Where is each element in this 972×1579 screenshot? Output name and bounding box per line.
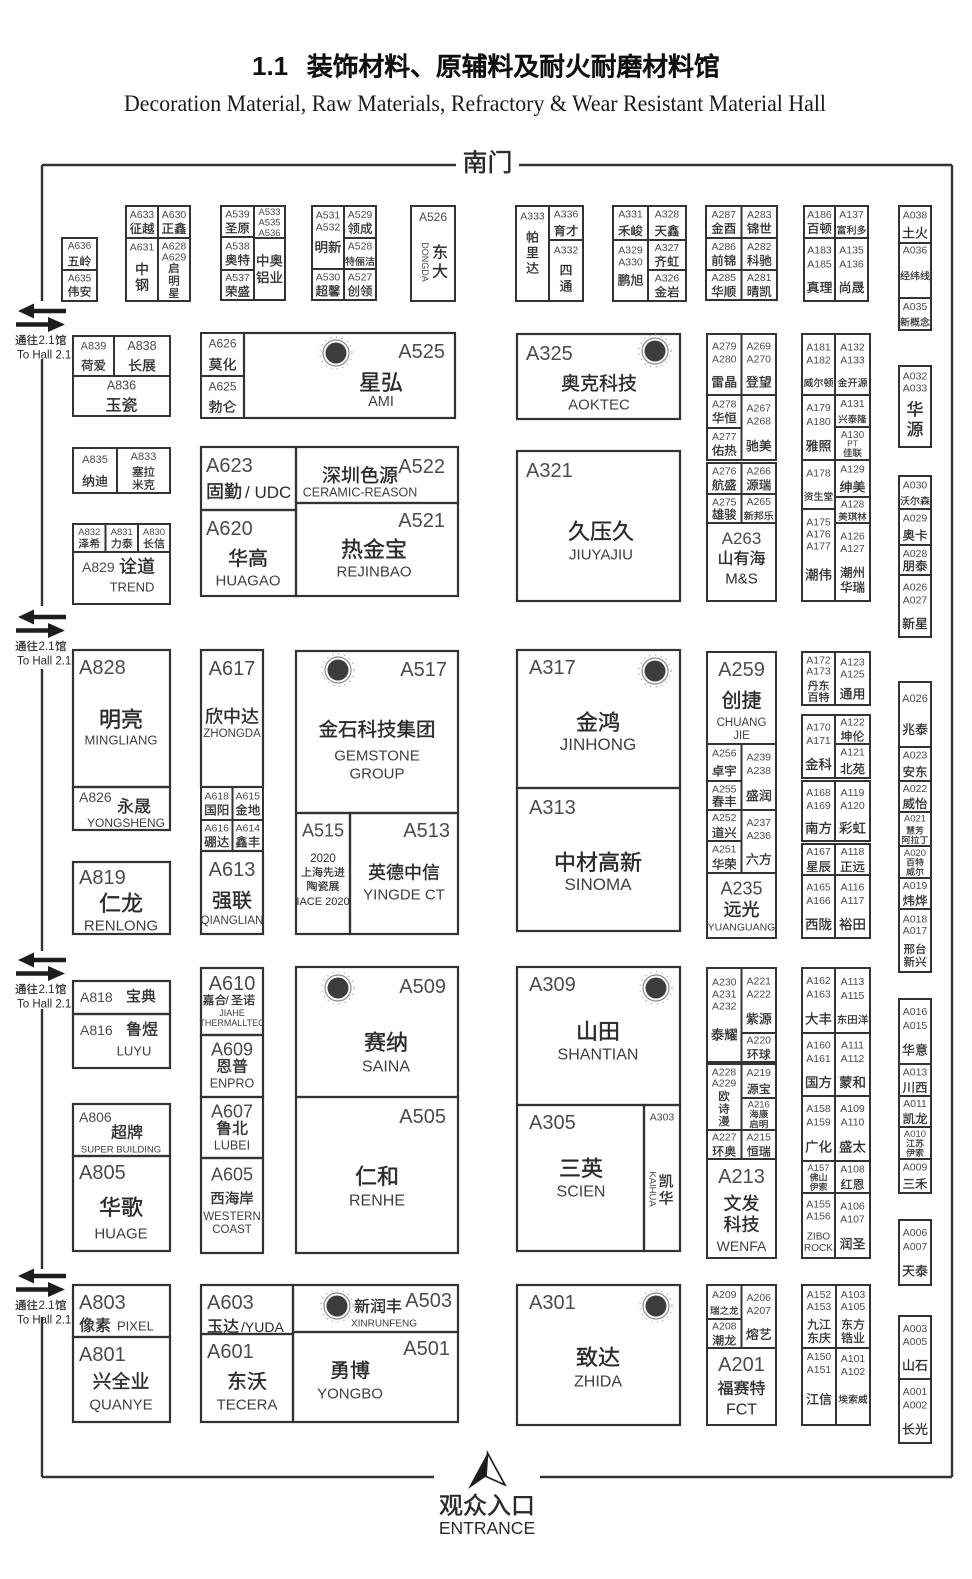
svg-text:2.1: 2.1: [39, 984, 55, 996]
svg-text:A605: A605: [211, 1164, 253, 1184]
svg-text:A021: A021: [904, 814, 926, 825]
svg-text:A161: A161: [806, 1053, 831, 1065]
svg-text:JIAHE: JIAHE: [219, 1008, 245, 1018]
svg-text:A832: A832: [78, 527, 100, 538]
svg-text:A839: A839: [81, 341, 107, 353]
svg-text:A176: A176: [806, 528, 831, 540]
svg-text:A173: A173: [806, 665, 831, 677]
svg-text:A159: A159: [806, 1117, 831, 1129]
svg-text:A539: A539: [225, 209, 250, 221]
svg-text:A175: A175: [806, 516, 831, 528]
svg-text:A137: A137: [839, 209, 864, 221]
svg-text:GEMSTONE: GEMSTONE: [334, 747, 420, 764]
svg-text:A281: A281: [747, 272, 772, 284]
svg-text:A166: A166: [806, 895, 831, 907]
svg-text:A035: A035: [903, 301, 928, 313]
svg-text:A207: A207: [746, 1305, 771, 1317]
svg-text:A333: A333: [520, 211, 545, 223]
svg-text:A009: A009: [903, 1162, 928, 1174]
svg-text:A229: A229: [712, 1078, 737, 1090]
svg-text:A170: A170: [806, 721, 831, 733]
svg-text:A818: A818: [80, 989, 113, 1005]
svg-text:A032: A032: [903, 371, 928, 383]
svg-text:RENHE: RENHE: [349, 1193, 405, 1210]
svg-text:A526: A526: [419, 210, 447, 224]
svg-text:A277: A277: [712, 431, 737, 443]
svg-text:A150: A150: [807, 1351, 832, 1363]
svg-text:A023: A023: [903, 750, 928, 762]
svg-text:A178: A178: [806, 468, 831, 480]
svg-text:PT: PT: [847, 439, 858, 449]
svg-text:A332: A332: [554, 245, 579, 257]
svg-text:JINHONG: JINHONG: [560, 735, 637, 754]
svg-text:A515: A515: [302, 820, 344, 840]
svg-text:A006: A006: [903, 1227, 928, 1239]
svg-text:YONGSHENG: YONGSHENG: [87, 816, 165, 830]
svg-text:A268: A268: [746, 416, 771, 428]
svg-text:A321: A321: [526, 460, 573, 482]
svg-text:A185: A185: [807, 258, 832, 270]
svg-text:THERMALLTEC: THERMALLTEC: [199, 1018, 265, 1028]
svg-text:CERAMIC-REASON: CERAMIC-REASON: [303, 485, 418, 499]
svg-text:A158: A158: [806, 1103, 831, 1115]
svg-text:A239: A239: [746, 751, 771, 763]
svg-text:/ UDC: / UDC: [245, 483, 291, 502]
svg-text:SHANTIAN: SHANTIAN: [558, 1047, 639, 1064]
svg-text:A011: A011: [903, 1098, 927, 1110]
svg-text:A216: A216: [748, 1099, 770, 1110]
svg-text:A027: A027: [903, 595, 928, 607]
svg-text:A112: A112: [841, 1053, 865, 1065]
svg-text:A186: A186: [807, 209, 832, 221]
svg-text:A830: A830: [143, 527, 165, 538]
svg-text:A026: A026: [903, 582, 928, 594]
svg-text:A105: A105: [841, 1301, 866, 1313]
svg-text:A603: A603: [207, 1292, 254, 1314]
svg-text:A155: A155: [806, 1199, 831, 1211]
svg-text:A221: A221: [746, 975, 771, 987]
svg-text:A633: A633: [130, 209, 155, 221]
svg-text:A532: A532: [316, 222, 341, 234]
svg-text:A019: A019: [903, 880, 928, 892]
svg-text:A213: A213: [718, 1166, 765, 1188]
svg-text:A110: A110: [841, 1117, 865, 1129]
svg-text:A522: A522: [398, 456, 445, 478]
svg-text:A529: A529: [348, 209, 373, 221]
svg-text:A163: A163: [806, 989, 831, 1001]
svg-text:A620: A620: [206, 518, 253, 540]
svg-text:A278: A278: [712, 399, 737, 411]
svg-text:A631: A631: [130, 242, 155, 254]
svg-text:A215: A215: [746, 1132, 771, 1144]
svg-text:A222: A222: [746, 989, 771, 1001]
svg-text:A505: A505: [399, 1106, 446, 1128]
svg-text:A152: A152: [807, 1289, 832, 1301]
svg-text:A623: A623: [206, 455, 253, 477]
svg-text:Decoration Material, Raw Mater: Decoration Material, Raw Materials, Refr…: [124, 91, 826, 116]
svg-text:A828: A828: [79, 657, 126, 679]
svg-text:A833: A833: [131, 451, 157, 463]
svg-text:A122: A122: [840, 717, 865, 729]
svg-text:A123: A123: [840, 657, 865, 669]
svg-text:DONGDA: DONGDA: [420, 242, 430, 282]
svg-text:M&S: M&S: [725, 570, 758, 587]
svg-text:KAIHUA: KAIHUA: [647, 1171, 658, 1207]
svg-text:A816: A816: [80, 1022, 113, 1038]
svg-text:2.1: 2.1: [39, 1300, 55, 1312]
svg-text:GROUP: GROUP: [349, 765, 404, 782]
svg-text:REJINBAO: REJINBAO: [336, 563, 411, 580]
svg-text:A157: A157: [807, 1163, 829, 1174]
svg-text:YUANGUANG: YUANGUANG: [708, 922, 776, 934]
svg-text:A179: A179: [806, 402, 831, 414]
svg-text:A636: A636: [68, 241, 92, 252]
svg-text:A517: A517: [400, 659, 447, 681]
svg-text:A113: A113: [841, 976, 865, 988]
svg-text:A836: A836: [107, 378, 136, 392]
svg-text:ENPRO: ENPRO: [210, 1076, 255, 1090]
svg-text:A020: A020: [904, 848, 926, 859]
svg-text:A231: A231: [712, 988, 737, 1000]
svg-text:A503: A503: [405, 1290, 452, 1312]
svg-text:A001: A001: [903, 1386, 928, 1398]
svg-text:A287: A287: [711, 209, 736, 221]
svg-text:A831: A831: [111, 527, 133, 538]
svg-text:A609: A609: [211, 1039, 253, 1059]
svg-text:A286: A286: [711, 241, 736, 253]
svg-text:A801: A801: [79, 1344, 126, 1366]
svg-text:A531: A531: [316, 210, 341, 222]
svg-text:A013: A013: [903, 1066, 928, 1078]
svg-text:A236: A236: [746, 830, 771, 842]
svg-text:A171: A171: [806, 735, 831, 747]
svg-text:A160: A160: [806, 1039, 831, 1051]
svg-text:A530: A530: [316, 272, 341, 284]
svg-text:A026: A026: [902, 693, 928, 705]
svg-text:A156: A156: [806, 1211, 831, 1223]
svg-text:A501: A501: [403, 1338, 450, 1360]
svg-text:CHUANG: CHUANG: [717, 717, 767, 729]
svg-text:A629: A629: [162, 252, 187, 264]
svg-text:A022: A022: [903, 783, 928, 795]
svg-text:ZIBO: ZIBO: [807, 1231, 831, 1242]
svg-text:ZHONGDA: ZHONGDA: [203, 728, 261, 740]
svg-text:A285: A285: [711, 272, 736, 284]
svg-text:A267: A267: [746, 402, 771, 414]
svg-text:A263: A263: [722, 529, 762, 548]
svg-text:JIUYAJIU: JIUYAJIU: [569, 546, 633, 563]
svg-text:A206: A206: [746, 1292, 771, 1304]
svg-text:A177: A177: [806, 540, 831, 552]
svg-text:A625: A625: [208, 379, 236, 393]
svg-text:TREND: TREND: [110, 580, 155, 595]
svg-text:A219: A219: [746, 1067, 771, 1079]
svg-text:A325: A325: [526, 343, 573, 365]
svg-text:A301: A301: [529, 1292, 576, 1314]
svg-text:AOKTEC: AOKTEC: [568, 396, 630, 413]
svg-text:WESTERN: WESTERN: [203, 1211, 261, 1223]
svg-text:2020: 2020: [310, 853, 336, 865]
svg-text:A838: A838: [127, 339, 156, 353]
svg-text:QIANGLIAN: QIANGLIAN: [201, 915, 264, 927]
svg-text:A626: A626: [208, 337, 236, 351]
svg-text:A120: A120: [840, 800, 865, 812]
svg-text:A103: A103: [841, 1289, 866, 1301]
svg-text:A270: A270: [746, 353, 771, 365]
svg-text:A819: A819: [79, 867, 126, 889]
svg-text:SCIEN: SCIEN: [557, 1184, 606, 1201]
svg-text:A525: A525: [398, 341, 445, 363]
svg-text:A007: A007: [903, 1241, 928, 1253]
svg-text:A108: A108: [840, 1163, 865, 1175]
svg-text:To Hall 2.1: To Hall 2.1: [17, 656, 71, 668]
svg-text:ROCK: ROCK: [804, 1243, 833, 1254]
svg-text:LUBEI: LUBEI: [214, 1138, 250, 1152]
svg-text:A521: A521: [398, 510, 445, 532]
svg-text:A230: A230: [712, 976, 737, 988]
svg-text:A829: A829: [82, 559, 115, 575]
svg-text:A208: A208: [712, 1321, 737, 1333]
svg-text:A220: A220: [746, 1035, 771, 1047]
svg-text:A607: A607: [211, 1101, 253, 1121]
svg-text:ENTRANCE: ENTRANCE: [439, 1518, 535, 1538]
svg-text:PIXEL: PIXEL: [117, 1319, 154, 1334]
svg-text:A127: A127: [840, 543, 865, 555]
svg-text:A005: A005: [903, 1336, 928, 1348]
svg-text:A513: A513: [403, 820, 450, 842]
svg-text:A118: A118: [841, 846, 865, 858]
svg-text:A117: A117: [841, 895, 865, 907]
svg-text:A128: A128: [841, 499, 865, 510]
svg-text:A614: A614: [235, 823, 260, 835]
svg-text:A803: A803: [79, 1292, 126, 1314]
svg-text:A169: A169: [806, 800, 831, 812]
svg-text:A129: A129: [840, 463, 865, 475]
svg-text:A317: A317: [529, 657, 576, 679]
svg-text:A136: A136: [839, 258, 864, 270]
svg-text:A125: A125: [840, 669, 865, 681]
svg-text:A209: A209: [712, 1289, 737, 1301]
svg-text:A826: A826: [79, 789, 112, 805]
svg-text:To Hall 2.1: To Hall 2.1: [17, 1315, 71, 1327]
svg-text:A109: A109: [840, 1103, 865, 1115]
svg-text:A255: A255: [712, 783, 737, 795]
svg-text:A533: A533: [258, 207, 280, 218]
svg-text:YONGBO: YONGBO: [317, 1385, 383, 1402]
svg-text:A133: A133: [840, 354, 865, 366]
svg-text:TECERA: TECERA: [217, 1396, 278, 1413]
svg-text:A181: A181: [806, 341, 831, 353]
svg-text:A269: A269: [746, 340, 771, 352]
svg-text:AMI: AMI: [368, 394, 394, 410]
svg-text:A018: A018: [903, 913, 928, 925]
svg-text:A038: A038: [903, 209, 928, 221]
svg-text:A180: A180: [806, 416, 831, 428]
svg-text:QUANYE: QUANYE: [89, 1396, 152, 1413]
svg-text:WENFA: WENFA: [717, 1238, 767, 1254]
svg-text:A227: A227: [712, 1132, 737, 1144]
svg-text:A115: A115: [841, 990, 865, 1002]
svg-text:A256: A256: [712, 748, 737, 760]
svg-text:A252: A252: [712, 812, 737, 824]
svg-text:ZHIDA: ZHIDA: [574, 1374, 622, 1391]
svg-text:A132: A132: [840, 341, 865, 353]
svg-text:A309: A309: [529, 974, 576, 996]
svg-text:A326: A326: [655, 273, 680, 285]
svg-text:A805: A805: [79, 1162, 126, 1184]
svg-text:A030: A030: [903, 479, 928, 491]
svg-text:A635: A635: [68, 274, 92, 285]
svg-text:A275: A275: [712, 496, 737, 508]
svg-text:A010: A010: [904, 1129, 926, 1140]
svg-text:A036: A036: [903, 244, 928, 256]
svg-text:A131: A131: [840, 398, 865, 410]
svg-text:RENLONG: RENLONG: [84, 917, 158, 934]
svg-text:A016: A016: [903, 1006, 928, 1018]
svg-text:A537: A537: [225, 272, 250, 284]
svg-text:A201: A201: [718, 1354, 765, 1376]
svg-text:A107: A107: [840, 1214, 865, 1226]
svg-text:/YUDA: /YUDA: [241, 1319, 284, 1335]
svg-text:A327: A327: [655, 242, 680, 254]
svg-text:A168: A168: [806, 787, 831, 799]
svg-text:SUPER BUILDING: SUPER BUILDING: [81, 1144, 161, 1155]
svg-text:A613: A613: [209, 859, 256, 881]
svg-text:A028: A028: [903, 548, 928, 560]
svg-text:A616: A616: [204, 823, 229, 835]
svg-text:A336: A336: [554, 209, 579, 221]
svg-text:A126: A126: [840, 530, 865, 542]
svg-text:A617: A617: [209, 658, 256, 680]
svg-text:A305: A305: [529, 1112, 576, 1134]
svg-text:1.1: 1.1: [252, 51, 288, 81]
svg-text:A116: A116: [841, 881, 865, 893]
svg-text:To Hall 2.1: To Hall 2.1: [17, 999, 71, 1011]
svg-text:HUAGAO: HUAGAO: [215, 572, 280, 589]
svg-text:A101: A101: [841, 1353, 866, 1365]
svg-text:XINRUNFENG: XINRUNFENG: [351, 1319, 417, 1330]
svg-text:A151: A151: [807, 1364, 832, 1376]
svg-text:To Hall 2.1: To Hall 2.1: [17, 350, 71, 362]
svg-text:A251: A251: [712, 843, 737, 855]
svg-text:LUYU: LUYU: [117, 1044, 152, 1059]
svg-text:A279: A279: [712, 340, 737, 352]
svg-text:A835: A835: [82, 454, 108, 466]
svg-text:2.1: 2.1: [39, 641, 55, 653]
svg-text:A017: A017: [903, 925, 928, 937]
svg-text:A119: A119: [841, 787, 865, 799]
svg-text:A183: A183: [807, 245, 832, 257]
svg-text:A266: A266: [746, 466, 771, 478]
svg-text:COAST: COAST: [212, 1224, 252, 1236]
svg-text:A509: A509: [399, 976, 446, 998]
svg-text:A303: A303: [650, 1112, 675, 1124]
svg-text:A237: A237: [746, 817, 771, 829]
svg-text:A618: A618: [204, 791, 229, 803]
svg-text:A283: A283: [747, 209, 772, 221]
svg-text:A331: A331: [618, 209, 643, 221]
svg-text:A162: A162: [806, 975, 831, 987]
svg-text:A167: A167: [806, 846, 831, 858]
svg-text:A265: A265: [746, 496, 771, 508]
svg-text:A313: A313: [529, 797, 576, 819]
svg-text:YINGDE CT: YINGDE CT: [363, 886, 445, 903]
svg-text:A282: A282: [747, 241, 772, 253]
svg-text:A276: A276: [712, 466, 737, 478]
svg-text:FCT: FCT: [726, 1402, 757, 1419]
svg-text:A153: A153: [807, 1301, 832, 1313]
svg-text:A538: A538: [225, 241, 250, 253]
svg-text:IACE 2020: IACE 2020: [296, 896, 349, 908]
svg-text:A630: A630: [162, 209, 187, 221]
svg-text:2.1: 2.1: [39, 335, 55, 347]
svg-text:A111: A111: [841, 1039, 864, 1051]
svg-text:A165: A165: [806, 881, 831, 893]
svg-text:A528: A528: [348, 241, 373, 253]
svg-text:SAINA: SAINA: [362, 1059, 410, 1076]
svg-text:A235: A235: [720, 878, 762, 898]
svg-text:A003: A003: [903, 1323, 928, 1335]
svg-text:HUAGE: HUAGE: [94, 1225, 147, 1242]
svg-text:A029: A029: [903, 512, 928, 524]
svg-text:A106: A106: [840, 1200, 865, 1212]
svg-text:A328: A328: [655, 209, 680, 221]
svg-text:A527: A527: [348, 272, 373, 284]
svg-text:A610: A610: [209, 973, 256, 995]
svg-text:A806: A806: [79, 1109, 112, 1125]
svg-text:MINGLIANG: MINGLIANG: [85, 733, 158, 748]
svg-text:A232: A232: [712, 1000, 737, 1012]
svg-text:A182: A182: [806, 354, 831, 366]
svg-text:A002: A002: [903, 1399, 928, 1411]
svg-text:A329: A329: [618, 245, 643, 257]
svg-text:A535: A535: [258, 217, 280, 228]
svg-text:A280: A280: [712, 353, 737, 365]
svg-text:A615: A615: [235, 791, 260, 803]
svg-text:A033: A033: [903, 383, 928, 395]
svg-text:A601: A601: [207, 1341, 254, 1363]
svg-text:A238: A238: [746, 765, 771, 777]
svg-text:SINOMA: SINOMA: [564, 875, 632, 894]
svg-text:A259: A259: [718, 659, 765, 681]
svg-text:A015: A015: [903, 1020, 928, 1032]
svg-text:A330: A330: [618, 257, 643, 269]
svg-text:A121: A121: [840, 747, 865, 759]
svg-text:JIE: JIE: [733, 730, 750, 742]
svg-text:A135: A135: [839, 245, 864, 257]
svg-text:A102: A102: [841, 1366, 866, 1378]
